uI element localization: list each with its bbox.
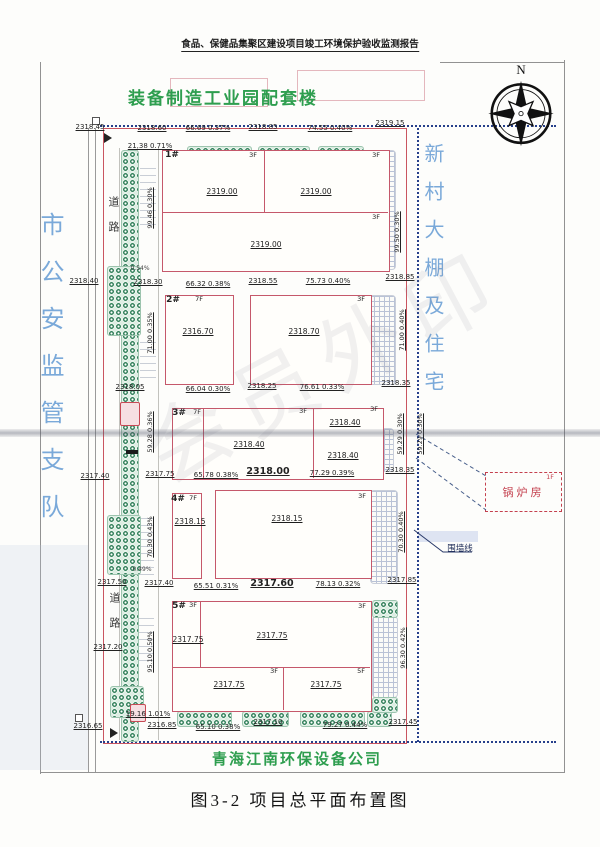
- flow-arrow: [104, 133, 112, 143]
- flow-arrow: [110, 728, 118, 738]
- scan-band-artifact: [0, 429, 600, 437]
